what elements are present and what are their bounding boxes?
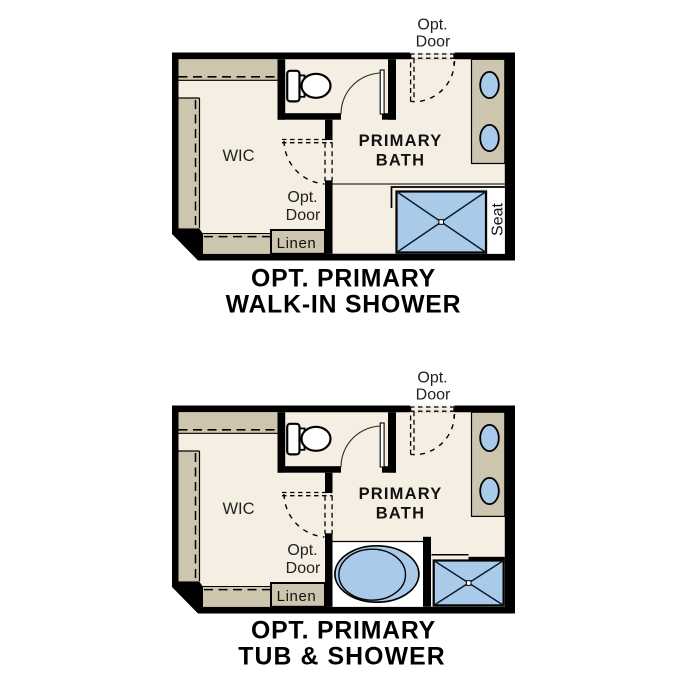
svg-text:WIC: WIC <box>222 500 254 518</box>
svg-text:PRIMARY: PRIMARY <box>359 132 443 150</box>
svg-text:OPT. PRIMARY: OPT. PRIMARY <box>251 618 436 645</box>
svg-text:OPT. PRIMARY: OPT. PRIMARY <box>251 266 436 293</box>
svg-text:Opt.: Opt. <box>287 542 317 559</box>
svg-text:PRIMARY: PRIMARY <box>359 485 443 503</box>
svg-text:WIC: WIC <box>222 147 254 165</box>
svg-text:TUB & SHOWER: TUB & SHOWER <box>238 644 445 671</box>
svg-text:Opt.: Opt. <box>287 189 317 206</box>
svg-text:Opt.: Opt. <box>417 370 447 387</box>
svg-text:Opt.: Opt. <box>417 17 447 34</box>
svg-text:Seat: Seat <box>490 202 507 235</box>
svg-text:BATH: BATH <box>376 505 425 523</box>
svg-text:Door: Door <box>286 560 321 577</box>
svg-text:Door: Door <box>416 34 451 51</box>
svg-text:Linen: Linen <box>277 235 317 252</box>
svg-text:BATH: BATH <box>376 152 425 170</box>
svg-text:WALK-IN SHOWER: WALK-IN SHOWER <box>226 292 462 319</box>
svg-text:Linen: Linen <box>277 588 317 605</box>
svg-text:Door: Door <box>286 207 321 224</box>
svg-text:Door: Door <box>416 387 451 404</box>
